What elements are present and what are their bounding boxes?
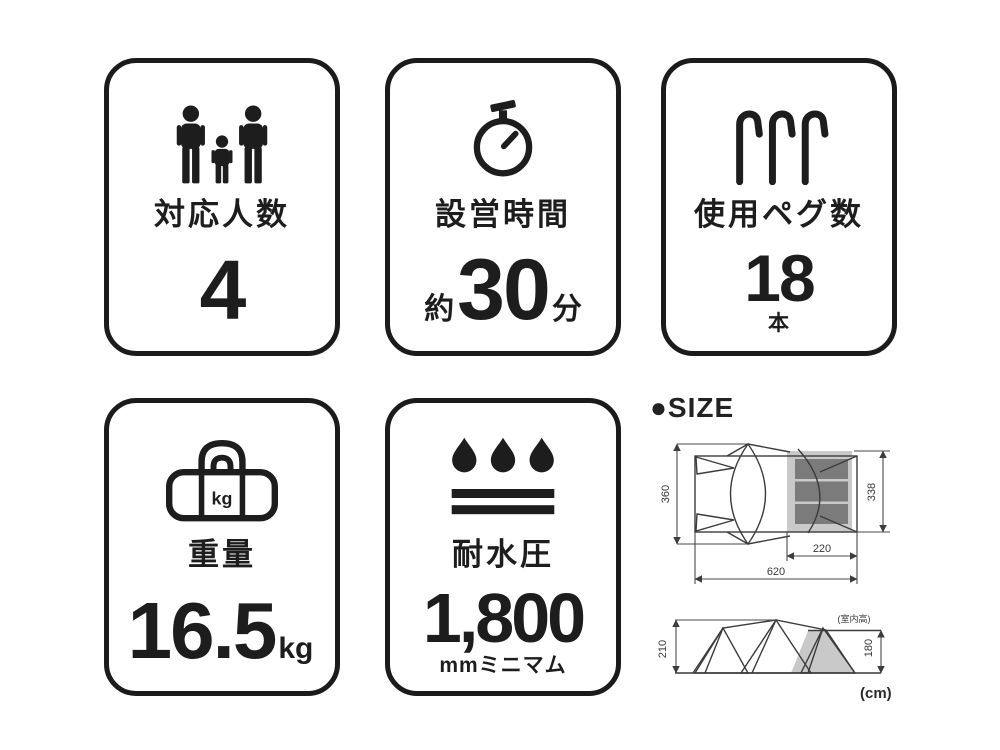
bag-kg-text: kg (212, 489, 233, 509)
water-drops-icon (445, 435, 561, 525)
card-label: 対応人数 (154, 199, 290, 230)
icon-slot (160, 93, 284, 185)
tent-side-view-diagram: 210 180 (室内高) (cm) (648, 598, 968, 720)
value-area: 18 本 (666, 230, 892, 351)
weight-unit: kg (278, 635, 313, 664)
inner-room-side-area (791, 630, 855, 673)
water-resistance-value: 1,800 (423, 585, 583, 652)
card-setup-time: 設営時間 約 30 分 (385, 58, 621, 356)
inner-height-note: (室内高) (838, 613, 871, 624)
tent-top-view-diagram: 360 338 220 620 (650, 424, 920, 594)
setup-time-value: 30 (457, 250, 549, 332)
weight-value: 16.5 (128, 593, 276, 669)
stopwatch-icon (458, 95, 548, 185)
value-area: 1,800 mmミニマム (390, 570, 616, 691)
card-label: 耐水圧 (452, 539, 554, 570)
tent-spec-sheet: 対応人数 4 設営時間 約 30 分 (0, 0, 1000, 750)
dim-total-depth: 360 (660, 485, 672, 503)
card-water-resistance: 耐水圧 1,800 mmミニマム (385, 398, 621, 696)
size-heading: ●SIZE (650, 392, 734, 424)
card-capacity: 対応人数 4 (104, 58, 340, 356)
tent-pegs-icon (724, 103, 834, 185)
card-weight: kg 重量 16.5 kg (104, 398, 340, 696)
value-area: 4 (109, 230, 335, 351)
dim-inner-room-width: 220 (813, 543, 831, 555)
icon-slot: kg (161, 433, 283, 525)
capacity-value: 4 (200, 251, 245, 331)
value-prefix: 約 (424, 296, 454, 325)
peg-count-value: 18 (744, 247, 813, 310)
icon-slot (458, 93, 548, 185)
peg-count-unit: 本 (768, 313, 790, 334)
card-label: 重量 (188, 539, 256, 570)
dim-total-width: 620 (767, 566, 785, 578)
value-area: 約 30 分 (390, 230, 616, 351)
unit-note: (cm) (860, 685, 892, 702)
card-label: 設営時間 (435, 199, 571, 230)
card-peg-count: 使用ペグ数 18 本 (661, 58, 897, 356)
water-resistance-unit: mmミニマム (439, 655, 566, 676)
icon-slot (445, 433, 561, 525)
dim-total-height: 210 (657, 640, 669, 658)
family-icon (160, 103, 284, 185)
card-label: 使用ペグ数 (694, 199, 864, 230)
dim-inner-room-depth: 338 (866, 483, 878, 501)
value-suffix: 分 (552, 296, 582, 325)
icon-slot (724, 93, 834, 185)
dim-inner-room-height: 180 (863, 639, 875, 657)
value-area: 16.5 kg (109, 570, 335, 691)
duffel-bag-icon: kg (161, 433, 283, 525)
